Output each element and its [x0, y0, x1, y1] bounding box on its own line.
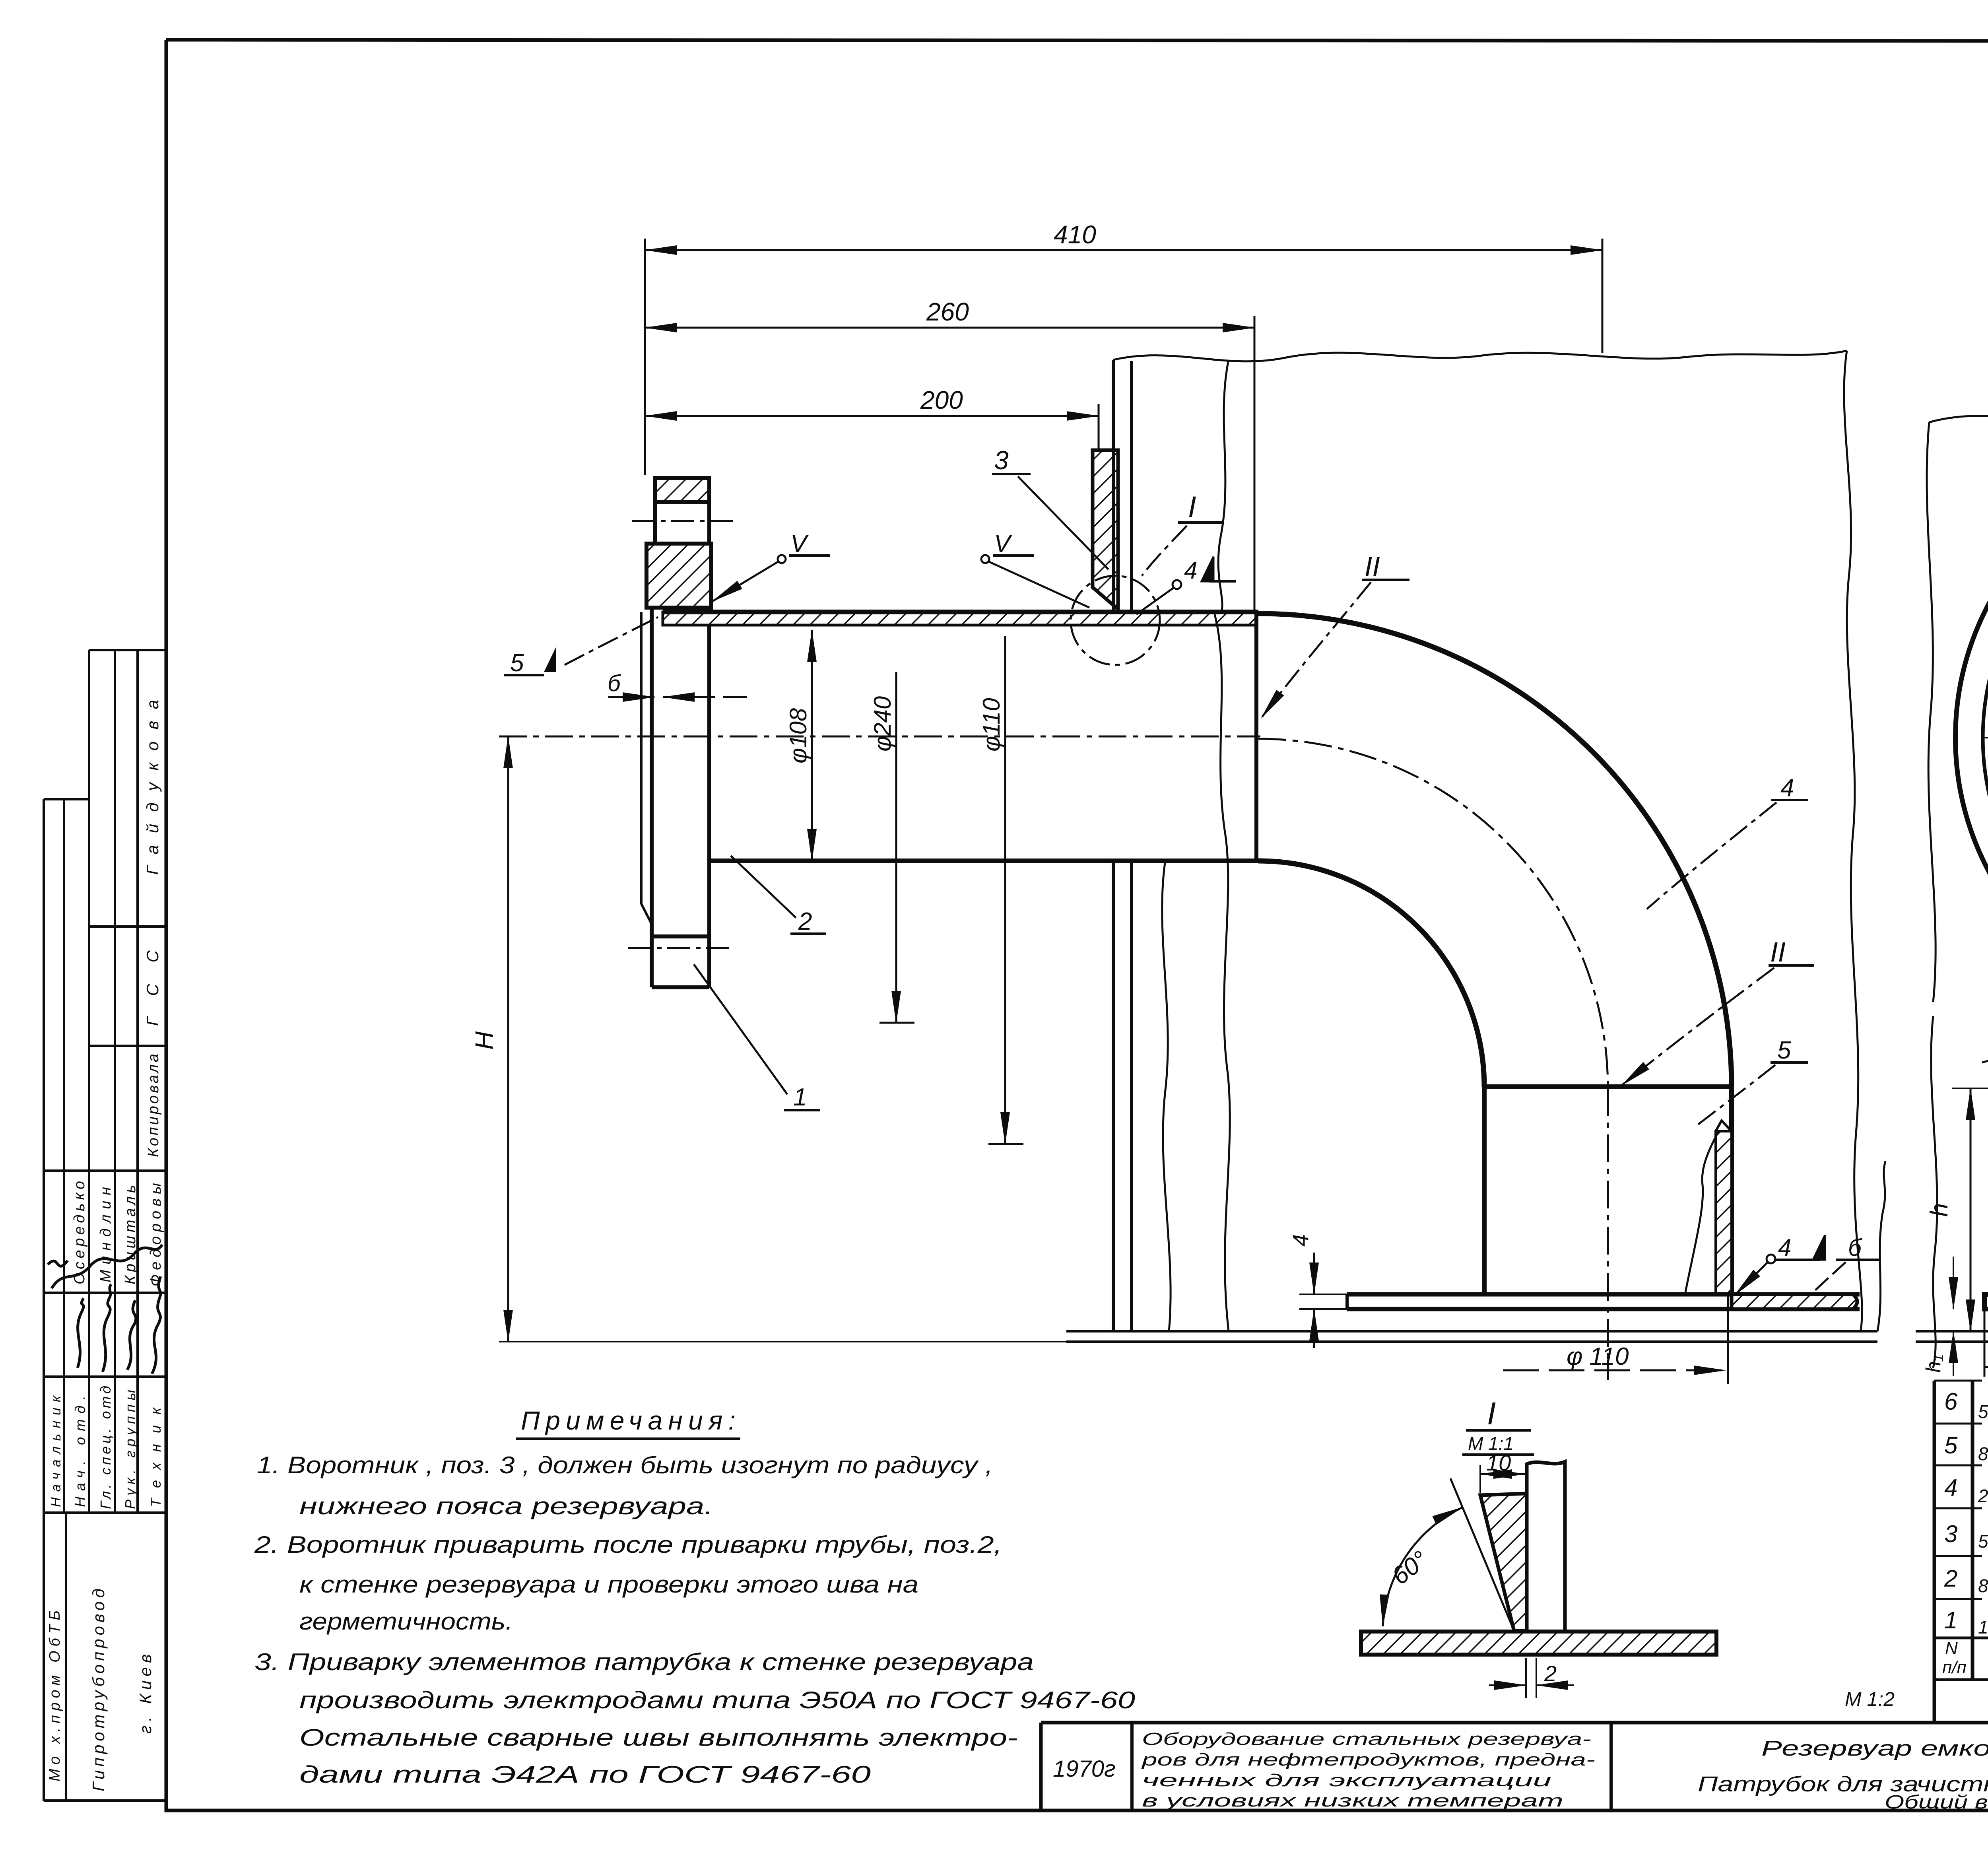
- svg-text:V: V: [994, 530, 1013, 557]
- svg-text:Миндлин: Миндлин: [97, 1187, 114, 1282]
- svg-text:производить электродами типа: производить электродами типа Э50А по ГОС…: [299, 1687, 1135, 1713]
- svg-text:Мо х.пром ОбТБ: Мо х.пром ОбТБ: [47, 1610, 63, 1781]
- svg-text:2: 2: [798, 908, 812, 935]
- svg-text:Гайдукова: Гайдукова: [143, 700, 162, 875]
- svg-text:V: V: [790, 530, 809, 557]
- svg-text:Нач. отд.: Нач. отд.: [72, 1396, 88, 1507]
- svg-text:8732-58: 8732-58: [1978, 1575, 1988, 1596]
- svg-text:к стенке резервуара и прове: к стенке резервуара и проверки этого шва…: [299, 1571, 918, 1598]
- svg-text:1: 1: [793, 1084, 807, 1111]
- svg-text:1. Воротник , поз. 3 , должен: 1. Воротник , поз. 3 , должен быть изогн…: [257, 1452, 993, 1478]
- svg-text:б: б: [1848, 1234, 1862, 1261]
- svg-text:ченных для эксплуатации: ченных для эксплуатации: [1142, 1771, 1551, 1790]
- svg-text:ГСС: ГСС: [143, 950, 162, 1026]
- svg-text:Техник: Техник: [148, 1407, 164, 1507]
- svg-text:N: N: [1945, 1639, 1958, 1658]
- svg-text:H: H: [470, 1031, 499, 1050]
- svg-text:Общий вид: Общий вид: [1885, 1792, 1988, 1813]
- svg-text:Резервуар емкостью: Резервуар емкостью: [1761, 1737, 1988, 1760]
- svg-text:М 1:2: М 1:2: [1845, 1688, 1895, 1710]
- svg-text:I: I: [1188, 490, 1196, 523]
- svg-text:Примечания:: Примечания:: [521, 1406, 736, 1435]
- svg-text:Рук. группы: Рук. группы: [122, 1390, 138, 1509]
- svg-text:4: 4: [1780, 774, 1794, 802]
- svg-text:нижнего пояса резервуара.: нижнего пояса резервуара.: [299, 1493, 713, 1519]
- svg-text:I: I: [1487, 1396, 1496, 1431]
- svg-text:2: 2: [1944, 1565, 1957, 1592]
- svg-text:Гипротрубопровод: Гипротрубопровод: [89, 1589, 108, 1791]
- svg-text:II: II: [1365, 551, 1380, 582]
- svg-text:5681-57: 5681-57: [1978, 1401, 1988, 1422]
- svg-text:2. Воротник приварить после: 2. Воротник приварить после приварки тру…: [254, 1531, 1002, 1558]
- svg-text:2: 2: [1544, 1661, 1557, 1686]
- svg-text:10: 10: [1486, 1450, 1511, 1475]
- svg-text:Федоровы: Федоровы: [148, 1183, 164, 1286]
- svg-text:Оборудование стальных резерв: Оборудование стальных резервуа-: [1142, 1729, 1591, 1749]
- svg-text:4: 4: [1944, 1474, 1957, 1501]
- svg-text:в условиях низких температ: в условиях низких температ: [1142, 1791, 1563, 1810]
- svg-text:3: 3: [994, 445, 1009, 475]
- svg-text:φ108: φ108: [785, 708, 812, 763]
- svg-text:4: 4: [1288, 1234, 1313, 1247]
- svg-text:φ240: φ240: [869, 696, 896, 752]
- svg-text:h₁: h₁: [1922, 1355, 1945, 1373]
- svg-text:6: 6: [1944, 1388, 1958, 1415]
- svg-text:ров для нефтепродуктов, предн: ров для нефтепродуктов, предна-: [1141, 1750, 1595, 1770]
- svg-text:1970г: 1970г: [1053, 1756, 1116, 1782]
- svg-text:5: 5: [510, 649, 524, 677]
- svg-text:5681-57: 5681-57: [1978, 1531, 1988, 1552]
- svg-text:1255 67: 1255 67: [1978, 1617, 1988, 1637]
- svg-text:φ110: φ110: [978, 698, 1005, 752]
- svg-text:3. Приварку элементов патру: 3. Приварку элементов патрубка к стенке …: [254, 1649, 1034, 1675]
- svg-text:Копировала: Копировала: [145, 1054, 162, 1157]
- svg-text:Гл. спец. отд: Гл. спец. отд: [97, 1386, 114, 1509]
- svg-text:б: б: [608, 670, 621, 696]
- svg-text:200: 200: [920, 386, 963, 414]
- svg-text:φ 110: φ 110: [1567, 1343, 1629, 1370]
- svg-text:260: 260: [926, 297, 969, 326]
- svg-text:г. Киев: г. Киев: [136, 1654, 155, 1734]
- svg-text:410: 410: [1054, 220, 1096, 249]
- svg-text:h: h: [1926, 1203, 1953, 1217]
- svg-text:4: 4: [1778, 1234, 1791, 1261]
- svg-text:1: 1: [1944, 1607, 1957, 1634]
- svg-text:Начальник: Начальник: [49, 1395, 64, 1507]
- svg-text:Кришталь: Кришталь: [122, 1185, 139, 1284]
- svg-text:II: II: [1770, 936, 1786, 967]
- svg-text:п/п: п/п: [1942, 1658, 1967, 1677]
- svg-text:60°: 60°: [1387, 1546, 1433, 1590]
- svg-text:8732-58: 8732-58: [1978, 1443, 1988, 1464]
- svg-text:дами типа Э42А по ГОСТ 94: дами типа Э42А по ГОСТ 9467-60: [299, 1761, 871, 1788]
- svg-text:Остальные сварные швы выпол: Остальные сварные швы выполнять электро-: [299, 1724, 1018, 1751]
- svg-text:5: 5: [1777, 1037, 1791, 1064]
- svg-text:герметичность.: герметичность.: [299, 1608, 513, 1635]
- svg-text:4: 4: [1184, 557, 1197, 584]
- svg-text:3: 3: [1944, 1521, 1957, 1547]
- svg-text:2913 62: 2913 62: [1978, 1486, 1988, 1506]
- svg-text:5: 5: [1944, 1432, 1958, 1459]
